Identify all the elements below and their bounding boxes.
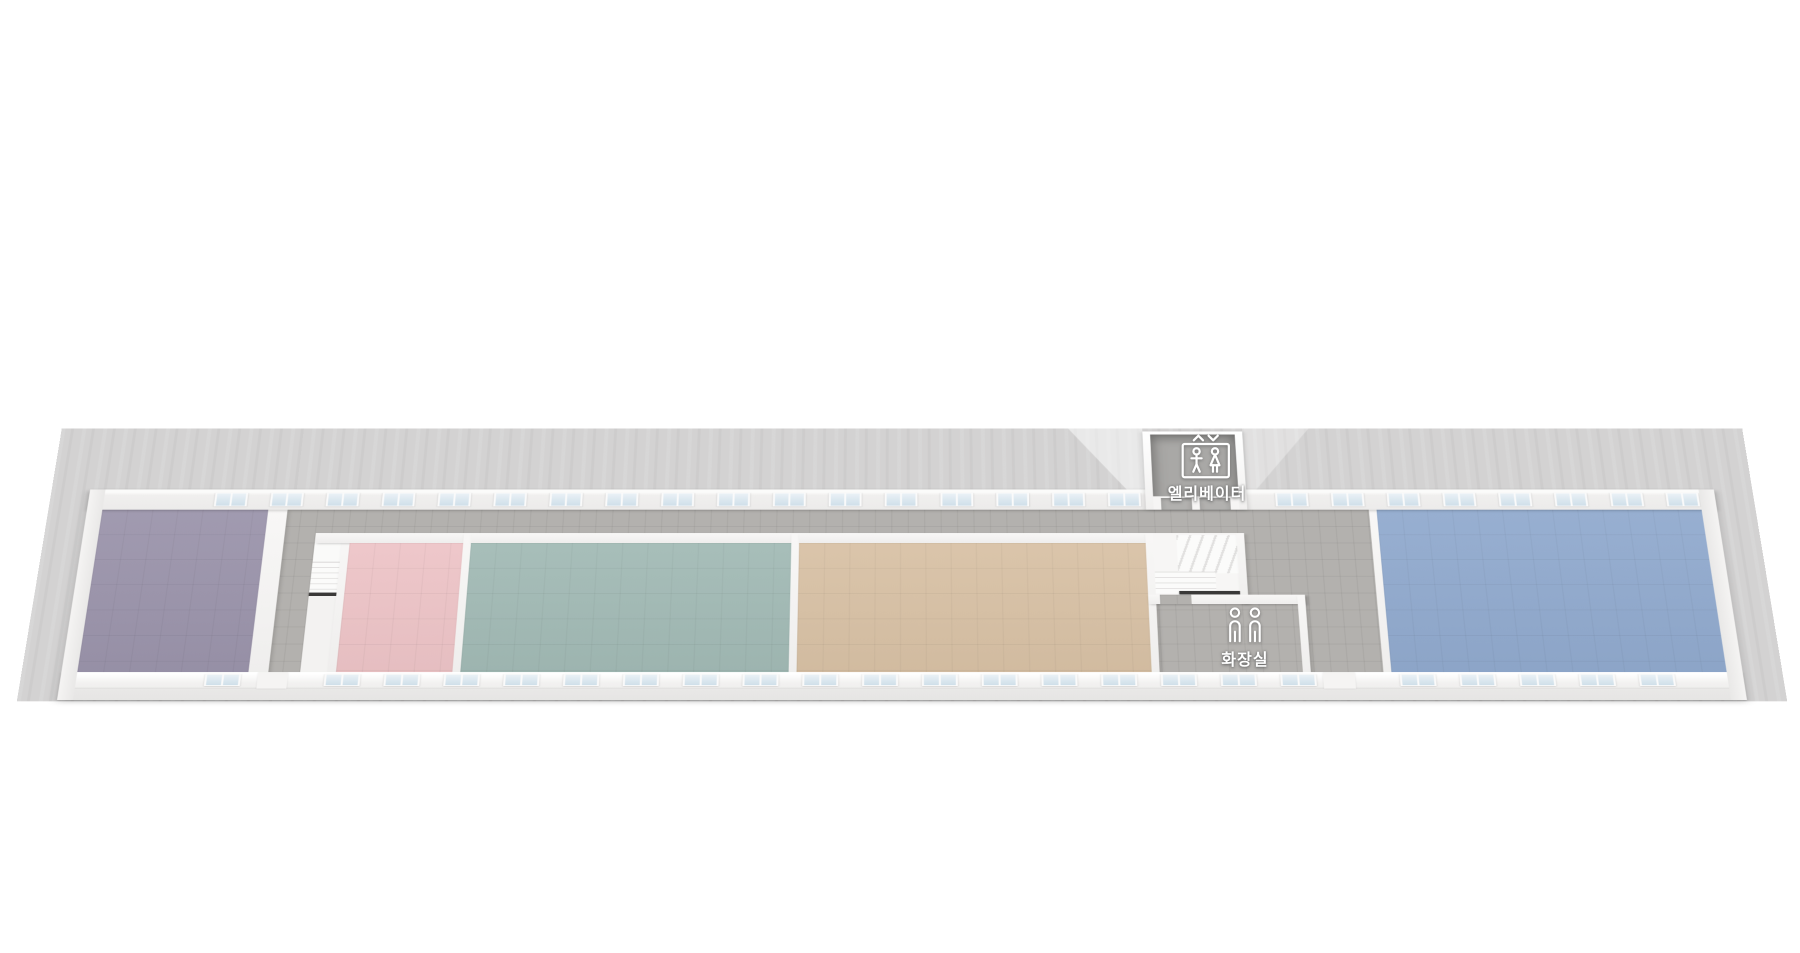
window — [1459, 674, 1496, 686]
window — [383, 674, 420, 686]
window — [326, 493, 360, 507]
window — [940, 493, 973, 507]
south-door-east — [1323, 672, 1356, 689]
window — [605, 493, 638, 507]
room-blue — [1377, 510, 1727, 672]
window — [829, 493, 862, 507]
window — [1161, 674, 1197, 686]
west-staircase — [309, 562, 340, 593]
window — [1041, 674, 1077, 686]
window — [1665, 493, 1700, 507]
wall-tan-top — [799, 533, 1153, 543]
window — [503, 674, 540, 686]
outer-wall-north — [87, 489, 1717, 509]
window — [1052, 493, 1085, 507]
window — [1387, 493, 1421, 507]
window — [1101, 674, 1137, 686]
room-tan — [797, 543, 1152, 672]
window — [996, 493, 1029, 507]
window — [270, 493, 304, 507]
window — [683, 674, 719, 686]
window — [1275, 493, 1309, 507]
window — [1331, 493, 1365, 507]
window — [1108, 493, 1141, 507]
wall-teal-top — [471, 533, 799, 543]
window — [1442, 493, 1476, 507]
window — [204, 674, 241, 686]
window — [1220, 674, 1257, 686]
window — [862, 674, 898, 686]
outer-wall-south — [57, 672, 1747, 700]
room-pink — [336, 543, 463, 672]
window — [885, 493, 918, 507]
floor-plan-scene: 엘리베이터 화장실 — [0, 0, 1800, 953]
window — [1400, 674, 1437, 686]
window — [623, 674, 659, 686]
wall-pink-top — [315, 533, 472, 543]
window — [717, 493, 750, 507]
window — [982, 674, 1018, 686]
window — [214, 493, 249, 507]
main-staircase-upper-flight — [1176, 535, 1239, 573]
window — [1638, 674, 1676, 686]
window — [773, 493, 806, 507]
window — [802, 674, 838, 686]
window — [922, 674, 958, 686]
room-purple — [77, 510, 268, 672]
window — [742, 674, 778, 686]
window — [437, 493, 471, 507]
window — [1610, 493, 1645, 507]
elevator-door-left — [1161, 498, 1192, 510]
window — [381, 493, 415, 507]
window — [1280, 674, 1317, 686]
window — [1579, 674, 1616, 686]
window — [443, 674, 480, 686]
window — [563, 674, 600, 686]
window — [1498, 493, 1532, 507]
window — [549, 493, 583, 507]
restroom-door-gap — [1160, 595, 1192, 604]
elevator-door-right — [1199, 498, 1231, 510]
elevator-shaft — [1142, 431, 1247, 509]
window — [1554, 493, 1589, 507]
west-stair-landing — [313, 543, 342, 562]
elevator-shaft-floor — [1150, 435, 1239, 502]
window — [1519, 674, 1556, 686]
window — [493, 493, 527, 507]
building-3d-plan — [57, 489, 1747, 700]
south-door-west — [256, 672, 288, 689]
room-teal — [460, 543, 791, 672]
window — [661, 493, 694, 507]
window — [324, 674, 361, 686]
